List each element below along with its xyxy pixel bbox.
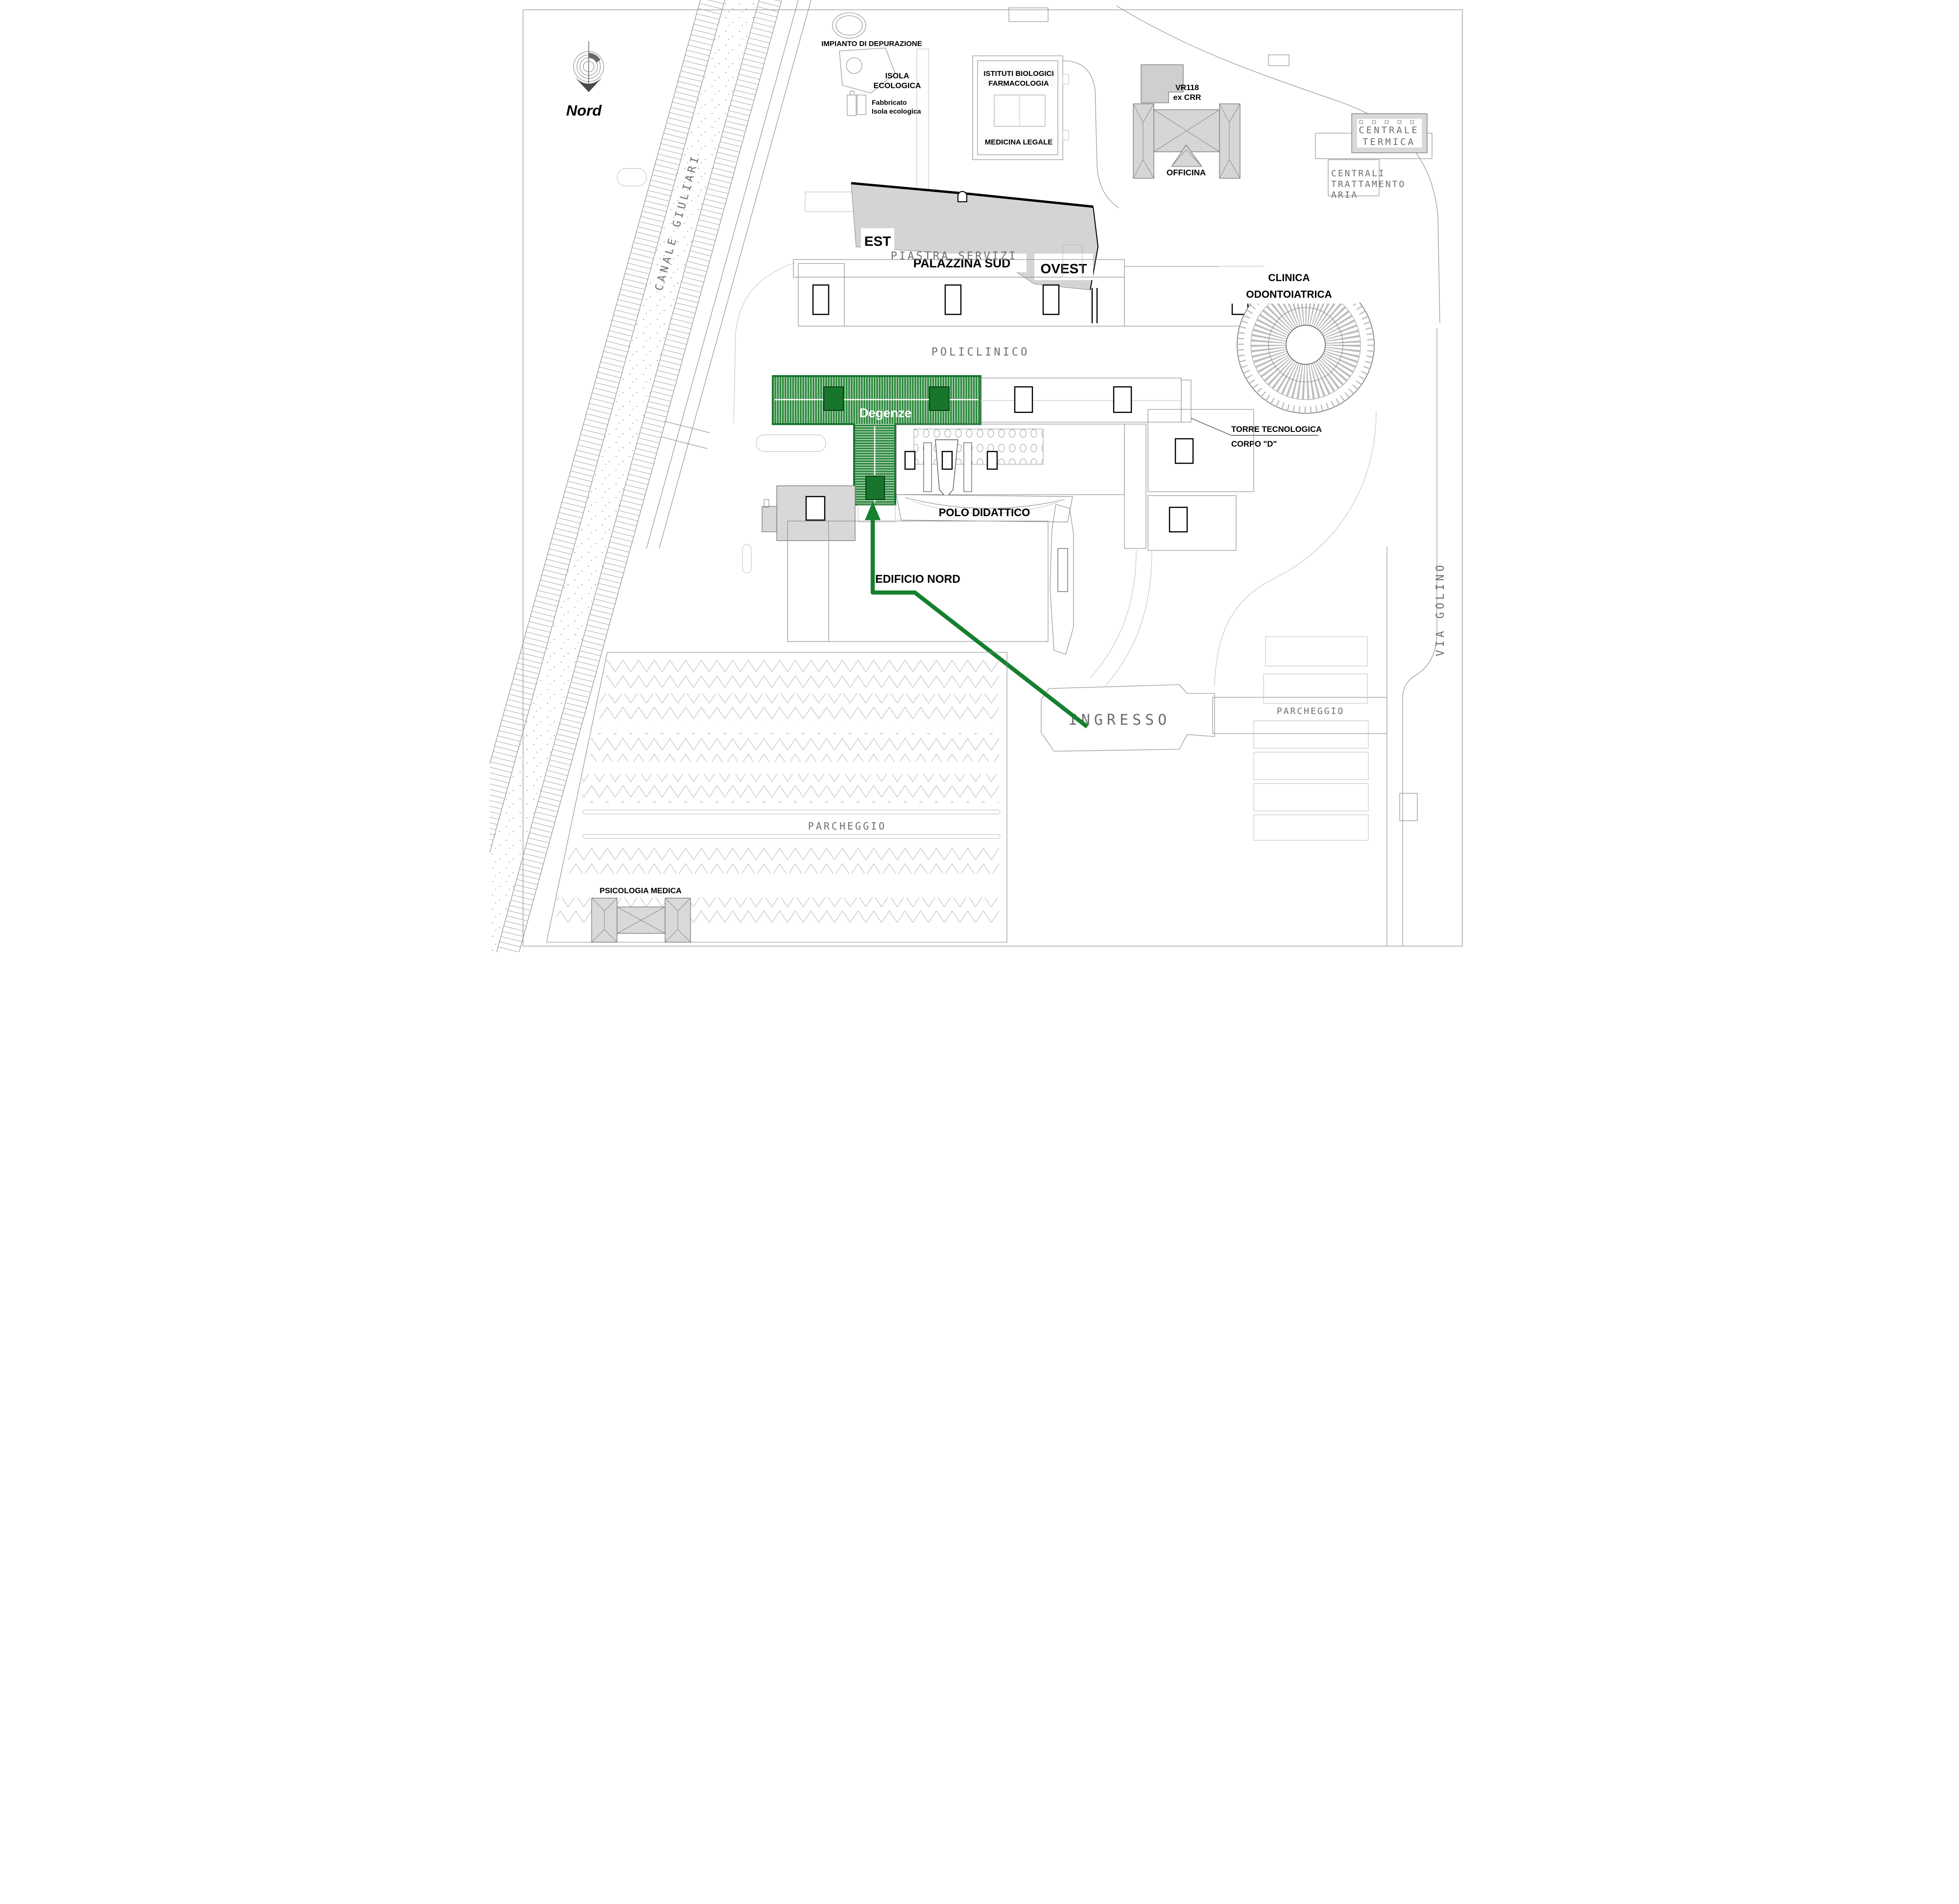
- degenze-core-3: [866, 476, 884, 500]
- ward-court-2: [1114, 387, 1131, 412]
- policlinico-court-1: [813, 285, 829, 314]
- centrali-aria-label-3: ARIA: [1331, 190, 1358, 200]
- polo-dots-panel: [914, 429, 1043, 464]
- keel-slot: [1058, 548, 1068, 592]
- vr118-label-2: ex CRR: [1173, 94, 1201, 102]
- officina-wing-east: [1219, 104, 1240, 178]
- via-golino-label: VIA GOLINO: [1434, 562, 1447, 656]
- clinica-ring-core: [1286, 325, 1325, 364]
- fabbricato-label-2: Isola ecologica: [872, 107, 921, 115]
- ward-court-1: [1015, 387, 1032, 412]
- vr118-label-1: VR118: [1175, 84, 1199, 92]
- fabbricato-label-1: Fabbricato: [872, 98, 907, 106]
- officina-wing-west: [1133, 104, 1154, 178]
- officina-label: OFFICINA: [1167, 168, 1206, 177]
- site-plan-page: CANALE GIULIARI Nord IMPIANTO DI DEPURAZ…: [490, 0, 1469, 952]
- east-court-upper: [1175, 439, 1193, 463]
- parking-sw-row-3: [591, 733, 999, 762]
- polo-court-east: [987, 452, 997, 469]
- parking-sw-row-4: [582, 774, 999, 803]
- psicologia-label: PSICOLOGIA MEDICA: [599, 887, 682, 895]
- isola-label-1: ISOLA: [885, 72, 909, 80]
- clinica-label-1: CLINICA: [1268, 272, 1310, 284]
- parking-sw-row-2: [599, 693, 999, 723]
- policlinico-label: POLICLINICO: [932, 346, 1030, 358]
- edificio-nord-label: EDIFICIO NORD: [875, 572, 960, 585]
- torre-label-2: CORPO "D": [1231, 439, 1277, 449]
- polo-court-west: [905, 452, 915, 469]
- west-building-court: [806, 497, 825, 520]
- isola-label-2: ECOLOGICA: [874, 82, 921, 90]
- polo-slot-west: [924, 443, 932, 492]
- palazzina-entrance-arch: [958, 191, 967, 202]
- istituti-label: ISTITUTI BIOLOGICI: [983, 70, 1053, 78]
- est-label: EST: [864, 234, 891, 249]
- west-building-wing: [762, 506, 777, 532]
- farmacologia-label: FARMACOLOGIA: [988, 79, 1049, 88]
- polo-court-center: [942, 452, 952, 469]
- east-court-lower: [1170, 507, 1187, 532]
- ovest-label: OVEST: [1041, 261, 1087, 276]
- medicina-legale-label: MEDICINA LEGALE: [985, 138, 1053, 146]
- parking-sw-row-5: [568, 844, 999, 874]
- policlinico-court-3: [1043, 285, 1059, 314]
- clinica-label-2: ODONTOIATRICA: [1246, 289, 1332, 300]
- north-label: Nord: [566, 102, 602, 119]
- polo-slot-east: [964, 443, 972, 492]
- piastra-servizi-label: PIASTRA SERVIZI: [891, 250, 1018, 262]
- degenze-core-2: [930, 387, 949, 410]
- site-plan-map: CANALE GIULIARI Nord IMPIANTO DI DEPURAZ…: [490, 0, 1469, 952]
- centrali-aria-label-2: TRATTAMENTO: [1331, 179, 1406, 190]
- centrale-termica-label-2: TERMICA: [1362, 137, 1415, 147]
- parking-e-label: PARCHEGGIO: [1277, 706, 1344, 716]
- parking-sw-label: PARCHEGGIO: [808, 820, 886, 832]
- policlinico-court-2: [945, 285, 961, 314]
- centrale-termica-label-1: CENTRALE: [1359, 125, 1419, 136]
- centrali-aria-label-1: CENTRALI: [1331, 168, 1386, 179]
- polo-didattico-label: POLO DIDATTICO: [939, 506, 1030, 519]
- torre-label-1: TORRE TECNOLOGICA: [1231, 425, 1322, 434]
- degenze-label: Degenze: [860, 405, 912, 420]
- depuration-label: IMPIANTO DI DEPURAZIONE: [821, 40, 922, 48]
- degenze-core-1: [824, 387, 843, 410]
- parking-sw-row-1: [606, 658, 999, 688]
